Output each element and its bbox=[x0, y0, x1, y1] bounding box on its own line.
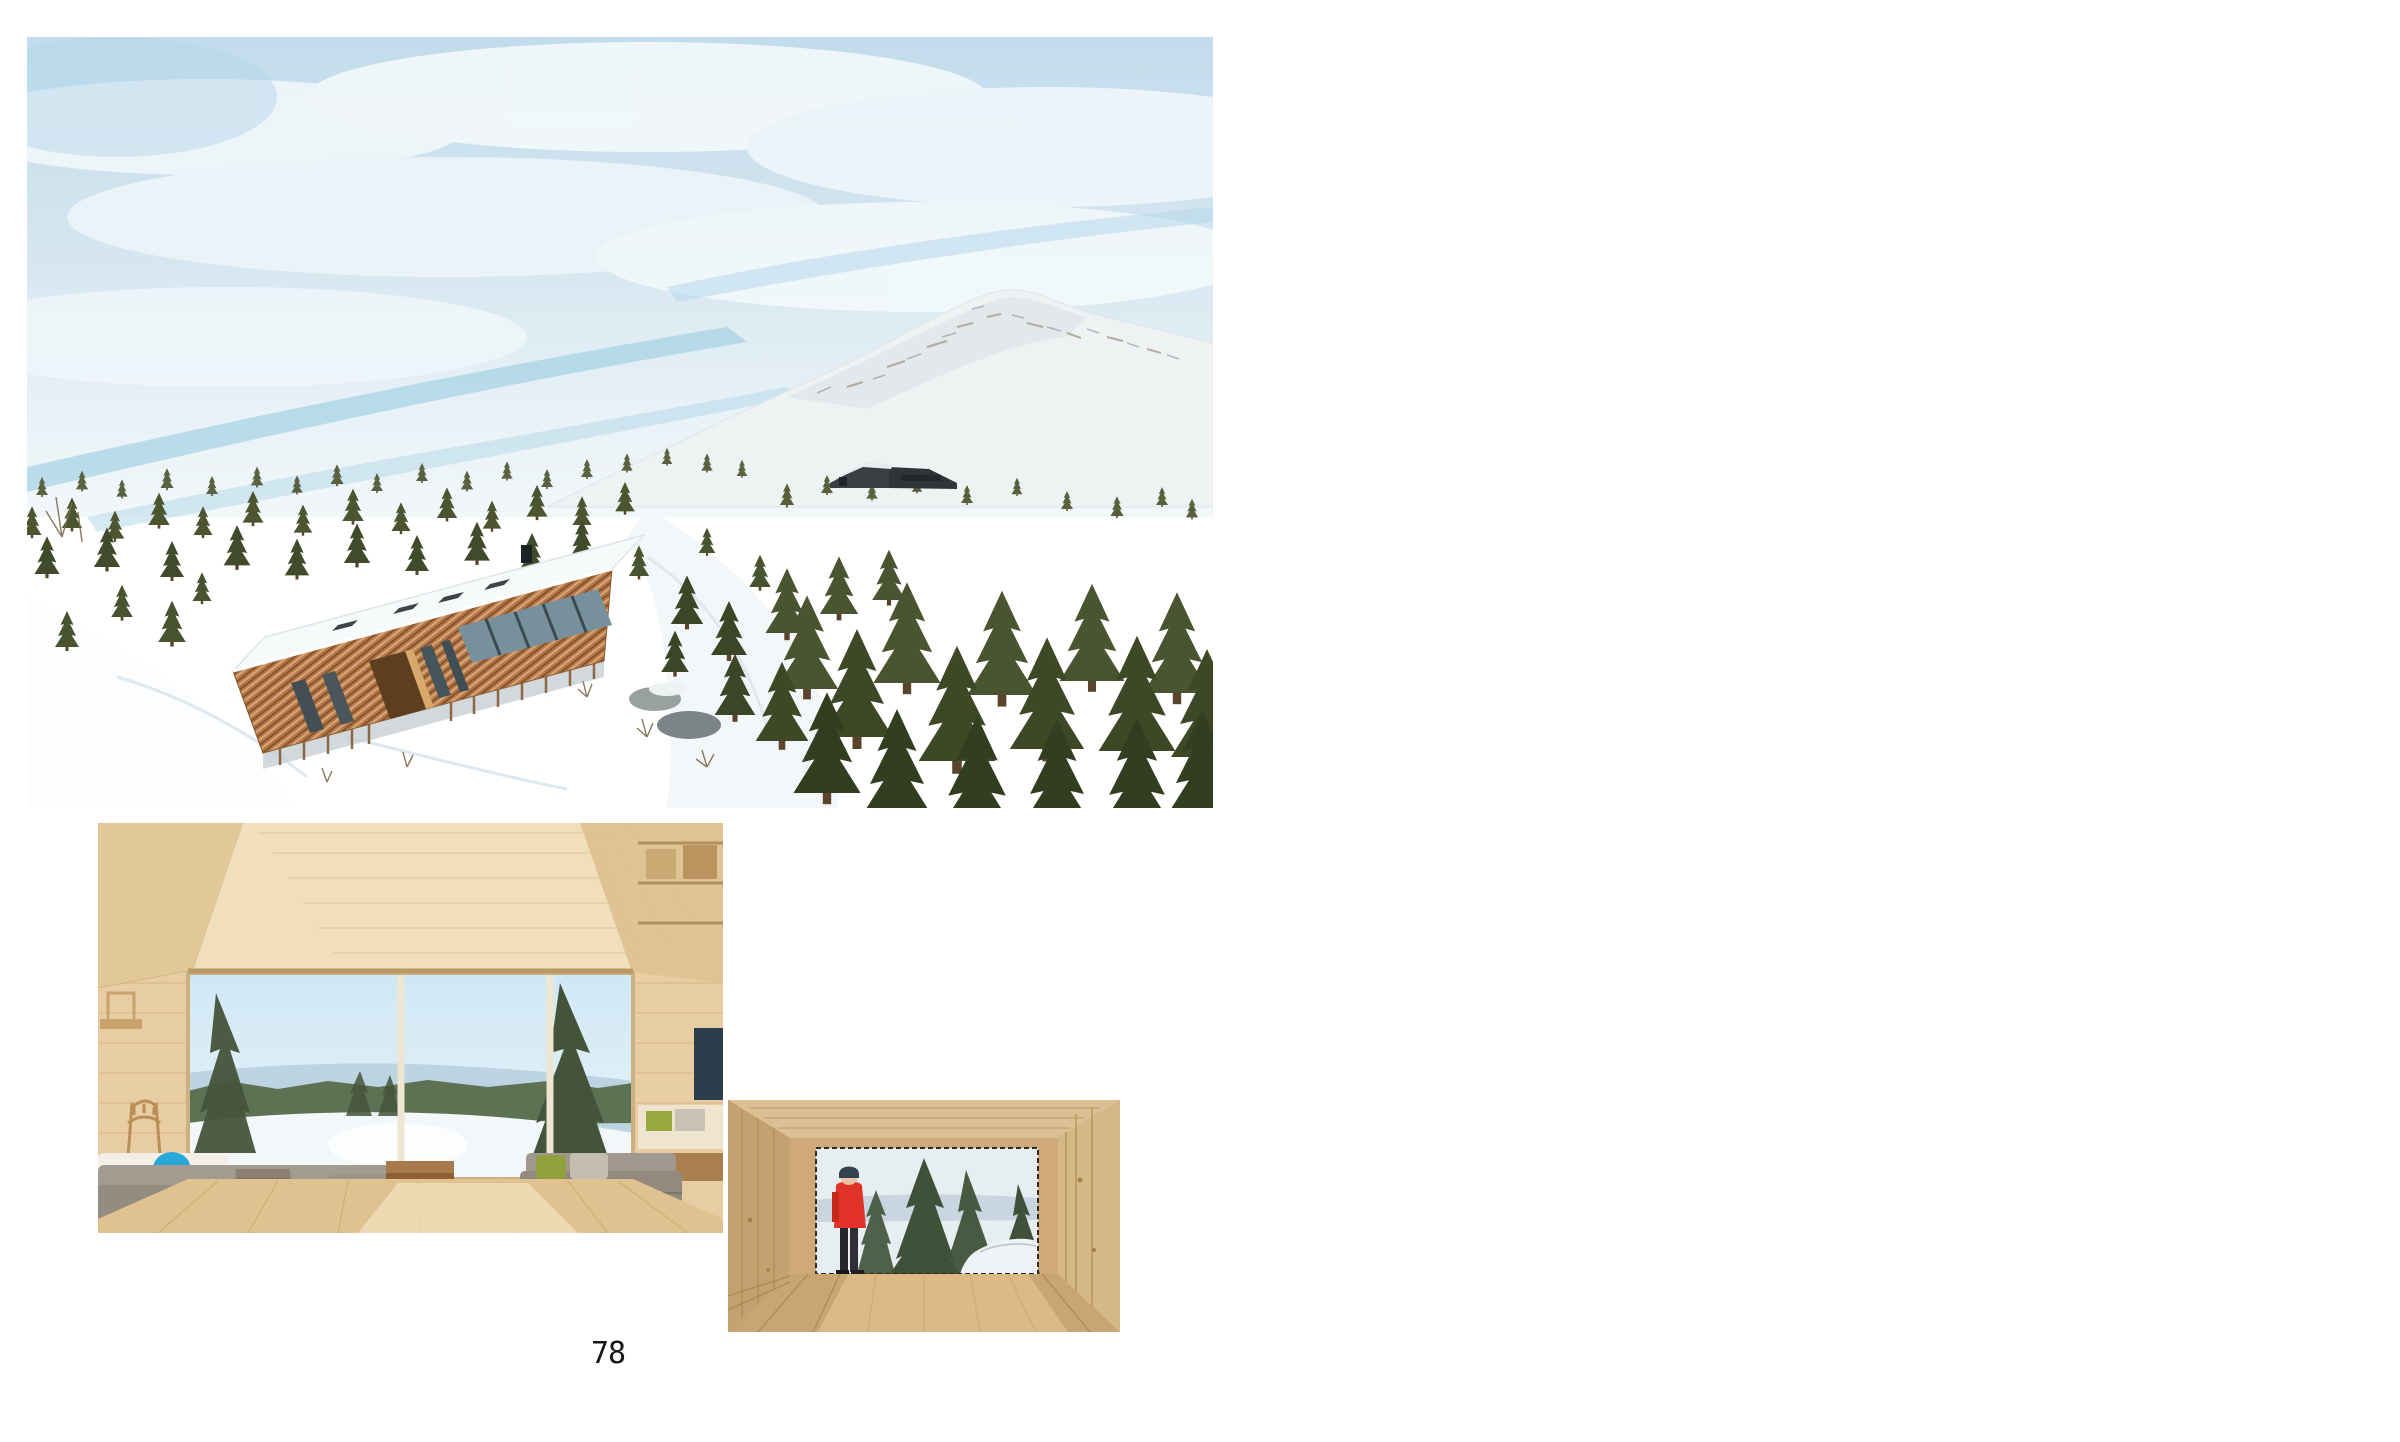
photo-mountain-landscape bbox=[27, 37, 1213, 808]
page-number-left: 78 bbox=[548, 1336, 668, 1371]
photo-cabin-interior bbox=[98, 823, 723, 1233]
panorama-window bbox=[188, 971, 633, 1179]
photo-veranda-person bbox=[728, 1100, 1120, 1332]
veranda-illustration bbox=[728, 1100, 1120, 1332]
page-left: 78 bbox=[0, 0, 1200, 1442]
floor-light-patch bbox=[818, 1274, 1068, 1332]
interior-illustration bbox=[98, 823, 723, 1233]
mountain-landscape-illustration bbox=[27, 37, 1213, 808]
green-pillow bbox=[536, 1155, 566, 1179]
page-right: On top of a mountain in Kvitfjell resort… bbox=[1200, 0, 2400, 1442]
cabin-chimney bbox=[521, 545, 532, 563]
ceiling-plane bbox=[193, 823, 632, 972]
wall-shelf bbox=[100, 1019, 142, 1029]
book-spread: 78 On top of a mountain in Kvitfjell res… bbox=[0, 0, 2400, 1442]
foreground-forest bbox=[756, 550, 1213, 808]
